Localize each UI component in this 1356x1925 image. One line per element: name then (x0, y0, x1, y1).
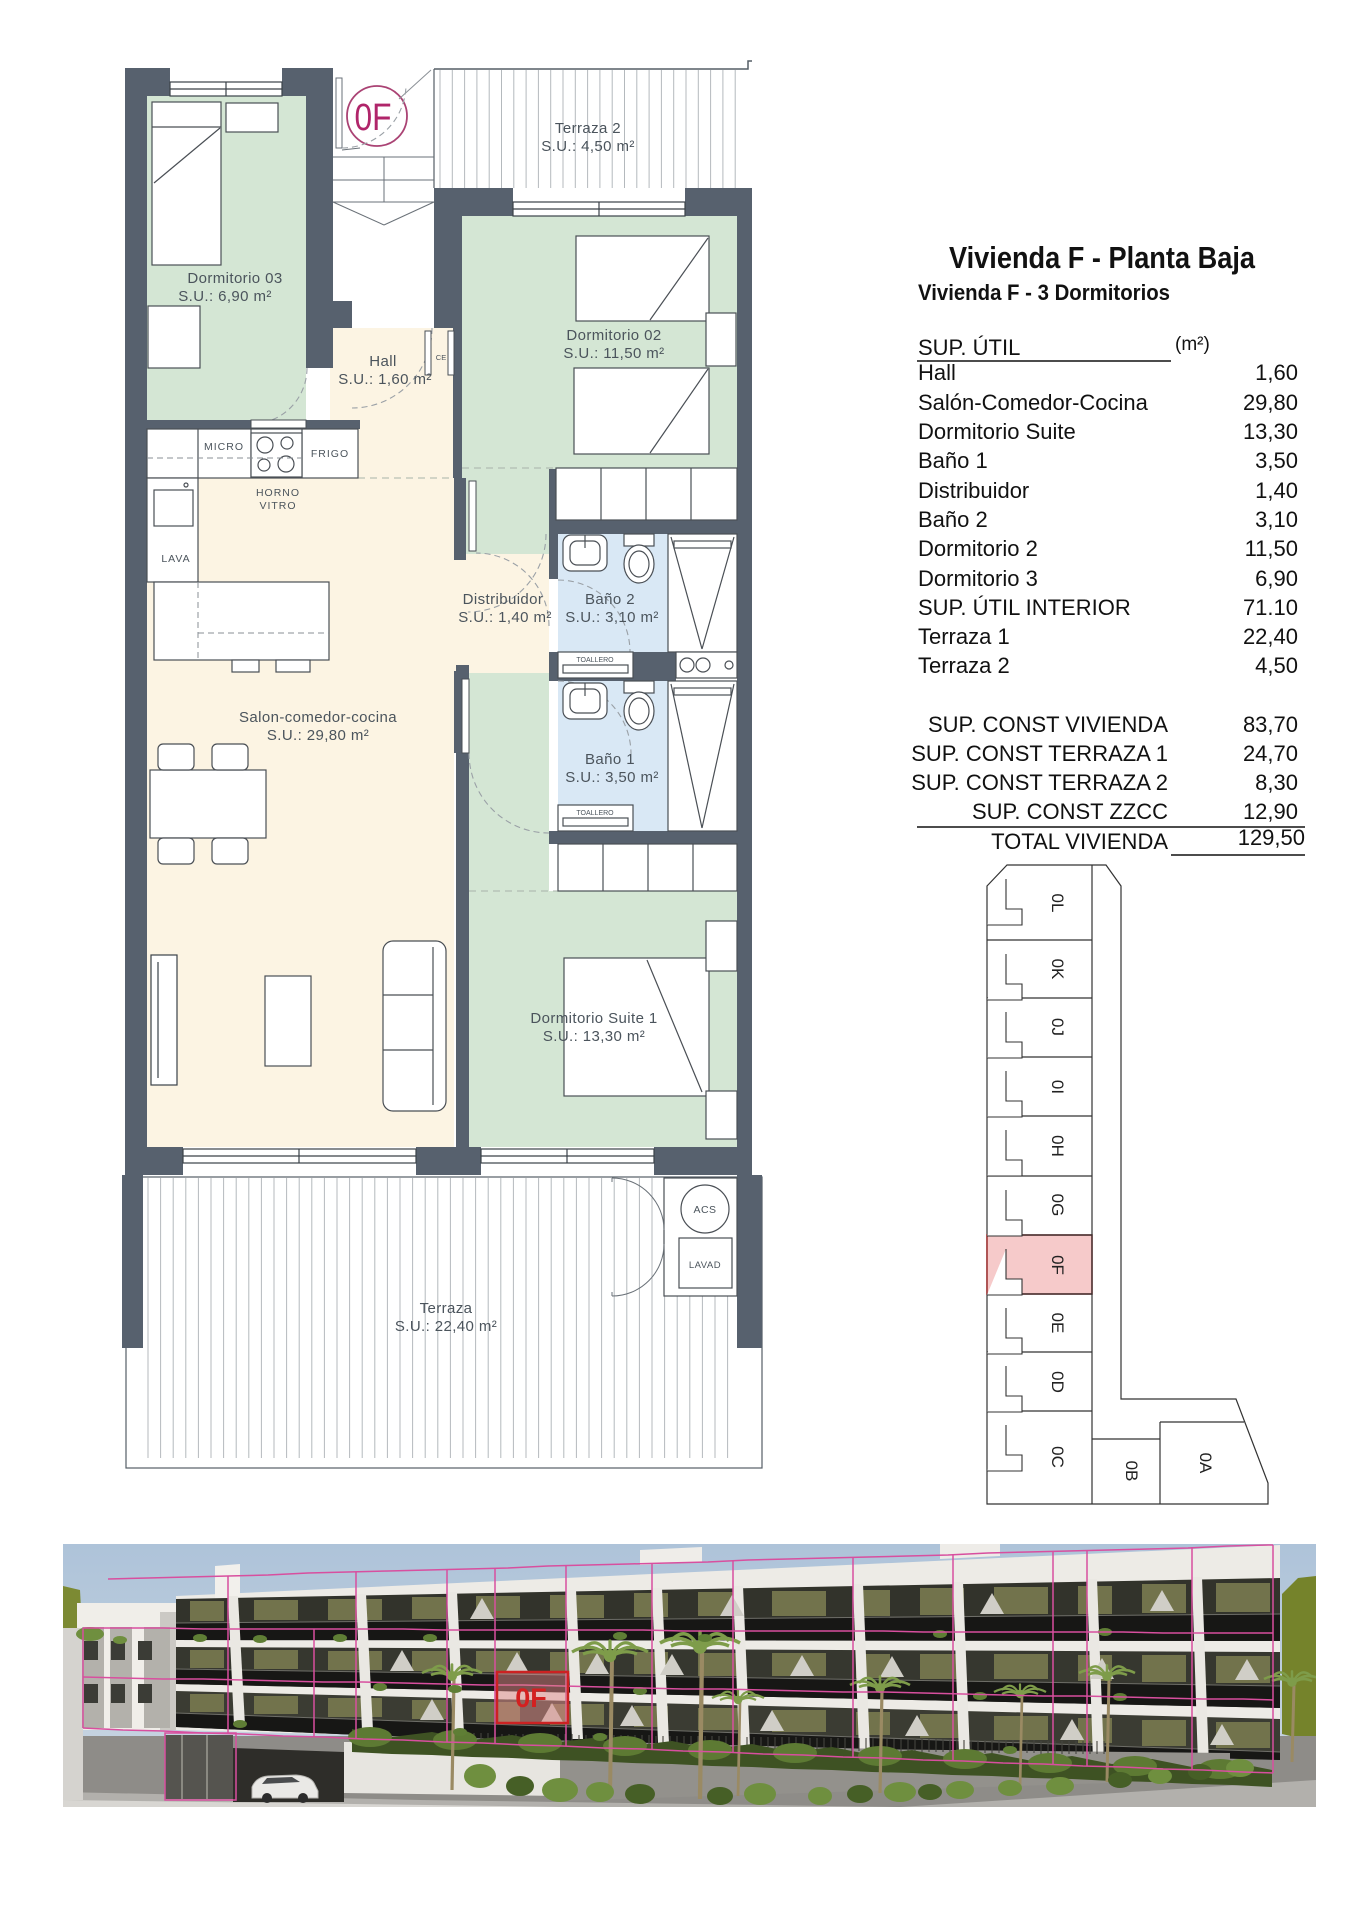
svg-text:Distribuidor: Distribuidor (918, 478, 1029, 503)
svg-text:0A: 0A (1196, 1453, 1215, 1474)
svg-text:0E: 0E (1048, 1313, 1067, 1334)
svg-text:S.U.: 11,50 m²: S.U.: 11,50 m² (563, 345, 664, 362)
svg-text:12,90: 12,90 (1243, 799, 1298, 824)
svg-text:6,90: 6,90 (1255, 566, 1298, 591)
svg-text:SUP. ÚTIL INTERIOR: SUP. ÚTIL INTERIOR (918, 595, 1131, 620)
svg-text:0F: 0F (1048, 1255, 1067, 1275)
svg-text:3,10: 3,10 (1255, 507, 1298, 532)
svg-text:CE: CE (436, 353, 446, 362)
svg-text:0D: 0D (1048, 1371, 1067, 1393)
svg-text:ACS: ACS (693, 1204, 716, 1216)
svg-text:3,50: 3,50 (1255, 448, 1298, 473)
svg-text:HORNO: HORNO (256, 487, 300, 499)
svg-text:4,50: 4,50 (1255, 653, 1298, 678)
svg-text:22,40: 22,40 (1243, 624, 1298, 649)
svg-text:0L: 0L (1048, 894, 1067, 913)
svg-text:Dormitorio Suite: Dormitorio Suite (918, 419, 1076, 444)
svg-text:FRIGO: FRIGO (311, 448, 349, 460)
svg-text:S.U.: 1,40 m²: S.U.: 1,40 m² (458, 609, 552, 626)
svg-text:1,40: 1,40 (1255, 478, 1298, 503)
svg-text:11,50: 11,50 (1245, 536, 1298, 561)
svg-text:LAVAD: LAVAD (689, 1260, 721, 1271)
svg-text:SUP. CONST VIVIENDA: SUP. CONST VIVIENDA (928, 712, 1168, 737)
svg-text:TOALLERO: TOALLERO (576, 657, 614, 664)
svg-text:SUP. CONST TERRAZA 2: SUP. CONST TERRAZA 2 (911, 770, 1168, 795)
svg-text:13,30: 13,30 (1243, 419, 1298, 444)
svg-text:Dormitorio 02: Dormitorio 02 (566, 327, 661, 344)
svg-text:Dormitorio 03: Dormitorio 03 (187, 270, 282, 287)
svg-text:MICRO: MICRO (204, 441, 244, 453)
svg-text:Baño 1: Baño 1 (918, 448, 988, 473)
svg-text:Terraza 2: Terraza 2 (555, 120, 621, 137)
svg-text:S.U.: 13,30 m²: S.U.: 13,30 m² (543, 1028, 645, 1045)
svg-text:Terraza 1: Terraza 1 (918, 624, 1010, 649)
svg-text:(m²): (m²) (1175, 334, 1210, 355)
svg-text:S.U.: 3,10 m²: S.U.: 3,10 m² (565, 609, 659, 626)
svg-text:SUP. CONST TERRAZA 1: SUP. CONST TERRAZA 1 (911, 741, 1168, 766)
svg-text:VITRO: VITRO (259, 500, 296, 512)
svg-text:Baño 1: Baño 1 (585, 751, 635, 768)
svg-text:Dormitorio 2: Dormitorio 2 (918, 536, 1038, 561)
svg-text:0B: 0B (1122, 1461, 1141, 1482)
svg-text:TOALLERO: TOALLERO (576, 810, 614, 817)
svg-text:Hall: Hall (918, 360, 956, 385)
svg-text:TOTAL VIVIENDA: TOTAL VIVIENDA (991, 829, 1168, 854)
svg-text:SUP. CONST ZZCC: SUP. CONST ZZCC (972, 799, 1168, 824)
svg-text:Dormitorio 3: Dormitorio 3 (918, 566, 1038, 591)
svg-text:1,60: 1,60 (1255, 360, 1298, 385)
svg-text:S.U.: 1,60 m²: S.U.: 1,60 m² (338, 371, 432, 388)
svg-text:0H: 0H (1048, 1135, 1067, 1157)
svg-text:Terraza: Terraza (420, 1300, 473, 1317)
svg-text:Hall: Hall (369, 353, 396, 370)
svg-text:29,80: 29,80 (1243, 390, 1298, 415)
svg-text:Baño 2: Baño 2 (918, 507, 988, 532)
svg-text:24,70: 24,70 (1243, 741, 1298, 766)
svg-text:Terraza 2: Terraza 2 (918, 653, 1010, 678)
svg-text:Dormitorio Suite 1: Dormitorio Suite 1 (530, 1010, 657, 1027)
svg-text:S.U.: 22,40 m²: S.U.: 22,40 m² (395, 1318, 497, 1335)
svg-text:Salón-Comedor-Cocina: Salón-Comedor-Cocina (918, 390, 1149, 415)
svg-text:S.U.: 29,80 m²: S.U.: 29,80 m² (267, 727, 369, 744)
svg-text:SUP. ÚTIL: SUP. ÚTIL (918, 335, 1020, 360)
svg-text:8,30: 8,30 (1255, 770, 1298, 795)
svg-text:Distribuidor: Distribuidor (463, 591, 544, 608)
svg-text:Vivienda F - Planta Baja: Vivienda F - Planta Baja (949, 240, 1256, 275)
svg-text:129,50: 129,50 (1238, 825, 1305, 850)
svg-text:0G: 0G (1048, 1194, 1067, 1217)
svg-text:S.U.: 3,50 m²: S.U.: 3,50 m² (565, 769, 659, 786)
svg-text:0F: 0F (515, 1683, 547, 1713)
svg-text:S.U.: 4,50 m²: S.U.: 4,50 m² (541, 138, 635, 155)
svg-text:0F: 0F (355, 97, 392, 139)
svg-text:Salon-comedor-cocina: Salon-comedor-cocina (239, 709, 397, 726)
svg-text:0K: 0K (1048, 959, 1067, 980)
svg-text:71.10: 71.10 (1243, 595, 1298, 620)
svg-text:0I: 0I (1048, 1080, 1067, 1094)
svg-text:83,70: 83,70 (1243, 712, 1298, 737)
svg-text:S.U.: 6,90 m²: S.U.: 6,90 m² (178, 288, 272, 305)
svg-text:LAVA: LAVA (161, 553, 190, 565)
svg-text:0J: 0J (1048, 1018, 1067, 1036)
svg-text:Vivienda F - 3 Dormitorios: Vivienda F - 3 Dormitorios (918, 280, 1170, 305)
svg-text:0C: 0C (1048, 1446, 1067, 1468)
svg-text:Baño 2: Baño 2 (585, 591, 635, 608)
